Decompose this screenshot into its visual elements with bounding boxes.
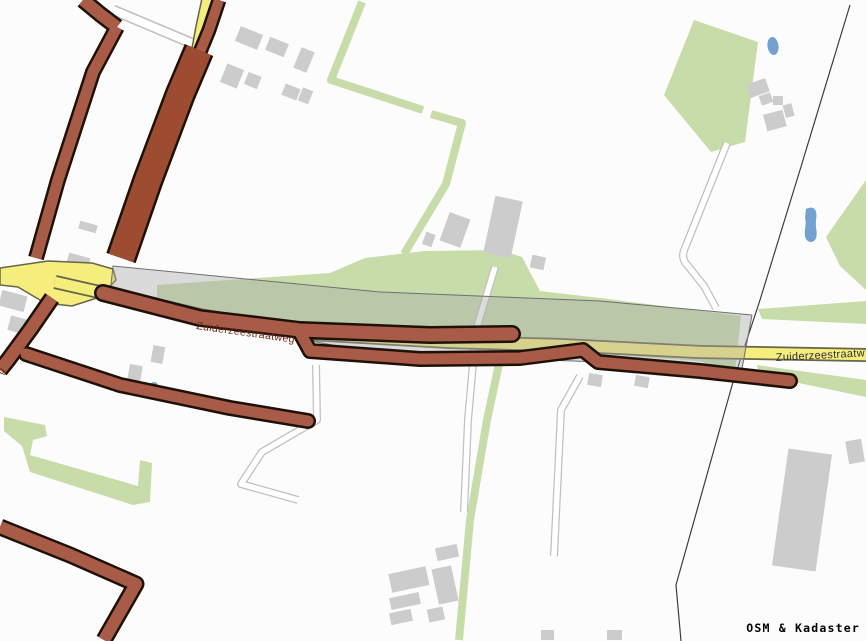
map-canvas[interactable]: Zuiderzeestraatweg Zuiderzeestraatw g OS… bbox=[0, 0, 866, 641]
building bbox=[587, 373, 603, 387]
building bbox=[773, 96, 783, 105]
building bbox=[541, 630, 554, 640]
building bbox=[607, 630, 622, 640]
pond bbox=[805, 208, 817, 242]
map-viewport[interactable]: Zuiderzeestraatweg Zuiderzeestraatw g OS… bbox=[0, 0, 866, 641]
attribution-text: OSM & Kadaster bbox=[746, 621, 860, 635]
